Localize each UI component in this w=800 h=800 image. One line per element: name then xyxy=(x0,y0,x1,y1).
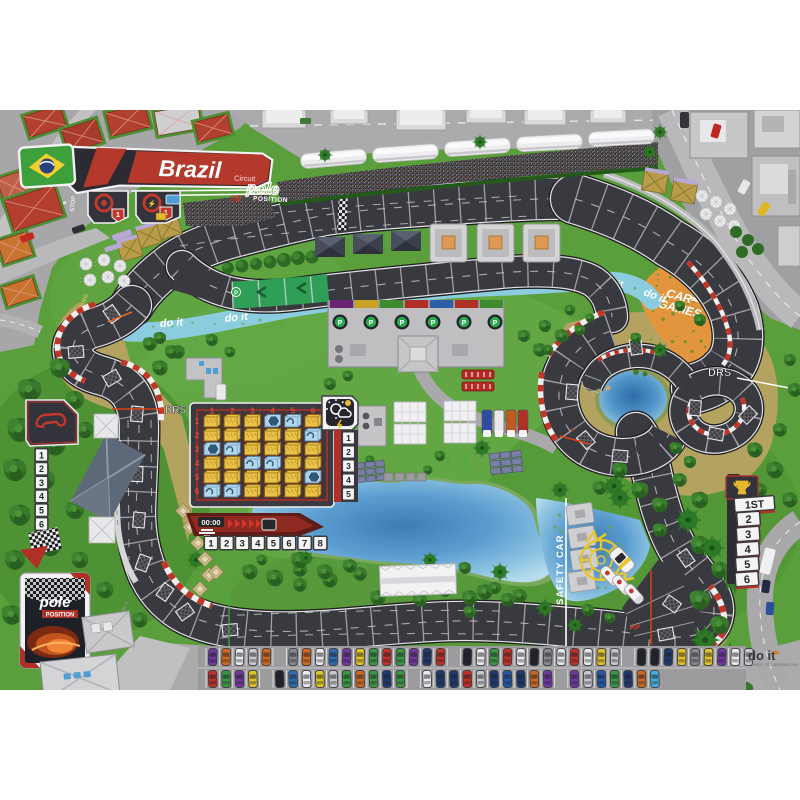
svg-text:3: 3 xyxy=(346,461,351,471)
svg-text:P: P xyxy=(234,291,238,297)
svg-text:⚡: ⚡ xyxy=(148,199,157,208)
svg-text:GAMES · 2023 DISTRIBUTION: GAMES · 2023 DISTRIBUTION xyxy=(750,663,798,667)
svg-text:5: 5 xyxy=(39,505,44,515)
svg-text:«: « xyxy=(570,425,575,434)
svg-text:P: P xyxy=(431,320,436,327)
svg-text:5: 5 xyxy=(271,538,277,549)
svg-text:7: 7 xyxy=(302,538,307,549)
svg-text:00:00: 00:00 xyxy=(201,518,220,527)
svg-text:do it: do it xyxy=(159,316,184,330)
svg-text:#8: #8 xyxy=(230,194,242,205)
svg-text:6: 6 xyxy=(743,574,750,586)
svg-text:4: 4 xyxy=(255,538,261,549)
svg-text:2: 2 xyxy=(346,447,351,457)
svg-text:5: 5 xyxy=(195,473,200,482)
svg-text:P: P xyxy=(369,320,374,327)
svg-text:do it: do it xyxy=(748,648,776,663)
svg-text:5: 5 xyxy=(744,559,751,571)
svg-text:1: 1 xyxy=(195,417,200,426)
svg-text:5: 5 xyxy=(346,489,351,499)
svg-text:1: 1 xyxy=(116,210,120,219)
svg-text:6: 6 xyxy=(286,538,291,549)
svg-text:1ST: 1ST xyxy=(745,498,766,511)
svg-text:2: 2 xyxy=(745,514,752,526)
svg-text:Brazil: Brazil xyxy=(158,155,222,183)
svg-text:P: P xyxy=(338,320,343,327)
svg-text:1: 1 xyxy=(346,433,351,443)
svg-text:4: 4 xyxy=(39,492,44,502)
svg-text:6: 6 xyxy=(39,519,44,529)
svg-text:1: 1 xyxy=(208,538,214,549)
svg-text:3: 3 xyxy=(39,478,44,488)
svg-text:8: 8 xyxy=(318,538,323,549)
svg-text:4: 4 xyxy=(195,459,200,468)
svg-text:pole: pole xyxy=(39,594,71,611)
svg-text:DRS: DRS xyxy=(165,405,186,416)
svg-text:4: 4 xyxy=(346,475,351,485)
svg-text:DRS: DRS xyxy=(708,367,731,379)
svg-text:3: 3 xyxy=(745,529,752,541)
svg-text:3: 3 xyxy=(195,445,200,454)
svg-text:2: 2 xyxy=(195,431,200,440)
svg-text:P: P xyxy=(493,320,498,327)
svg-text:2: 2 xyxy=(39,464,44,474)
svg-text:1: 1 xyxy=(39,450,44,460)
svg-text:POSITION: POSITION xyxy=(46,613,75,619)
svg-text:P: P xyxy=(462,320,467,327)
svg-text:3: 3 xyxy=(240,538,245,549)
svg-text:6: 6 xyxy=(195,487,200,496)
svg-text:P: P xyxy=(400,320,405,327)
svg-text:2: 2 xyxy=(224,538,229,549)
svg-text:SAFETY CAR: SAFETY CAR xyxy=(555,534,566,605)
